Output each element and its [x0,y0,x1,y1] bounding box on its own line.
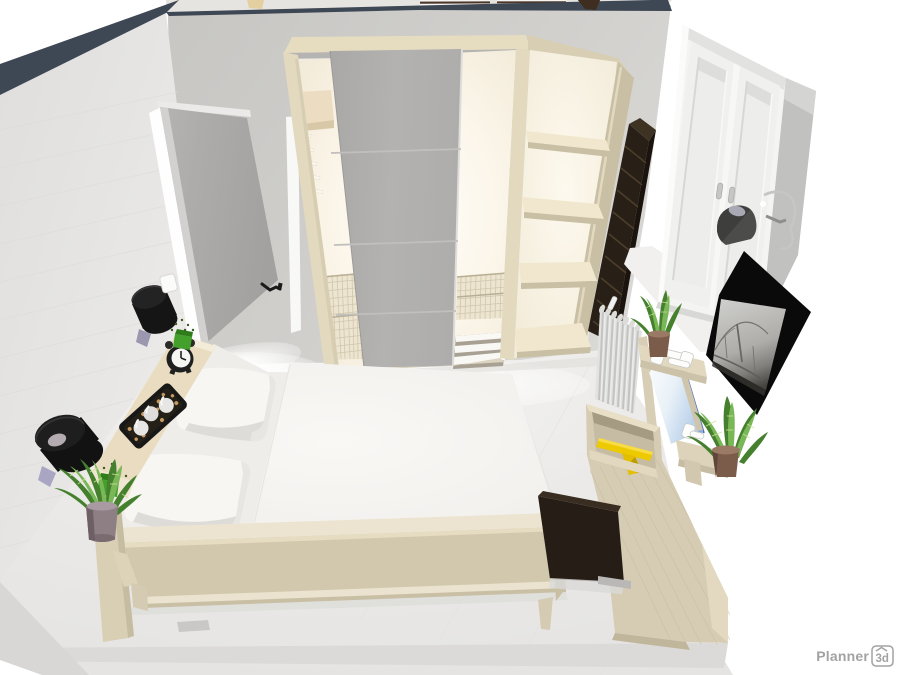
svg-text:3d: 3d [876,653,889,665]
svg-text:Planner: Planner [816,648,869,664]
